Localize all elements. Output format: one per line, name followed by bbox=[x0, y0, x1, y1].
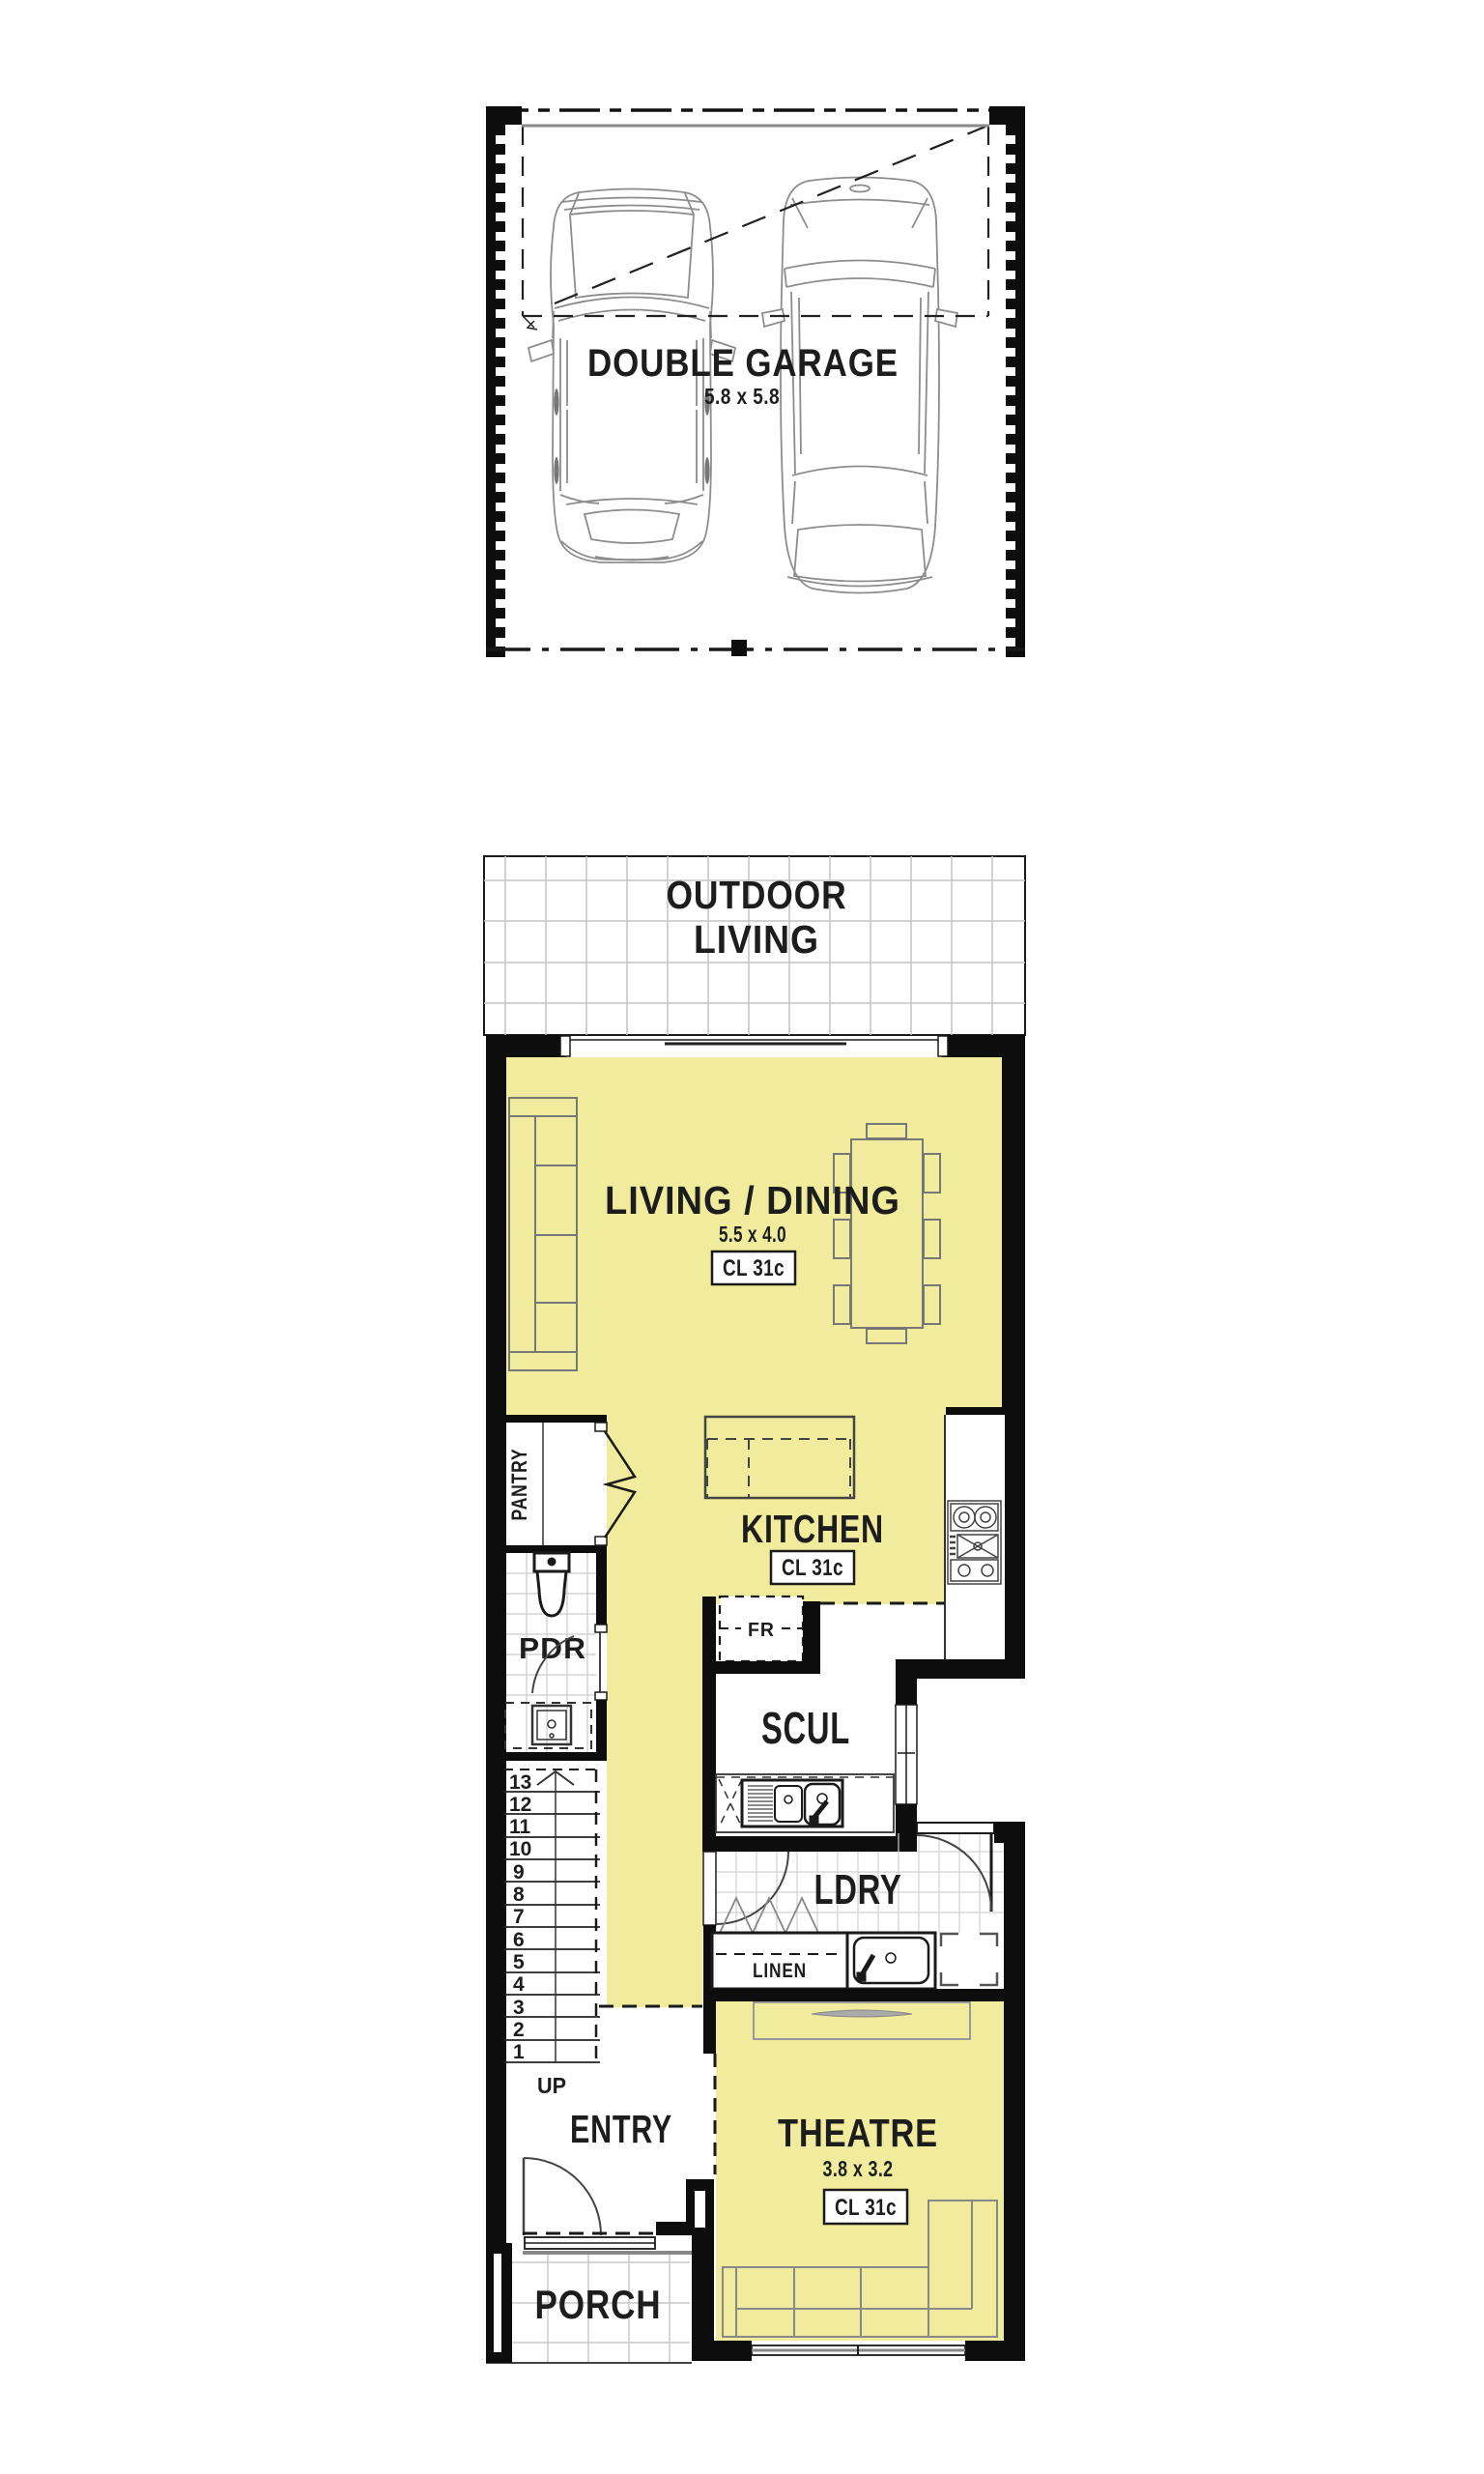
svg-text:2: 2 bbox=[513, 2019, 525, 2041]
svg-text:UP: UP bbox=[537, 2073, 566, 2098]
svg-text:4: 4 bbox=[513, 1973, 525, 1996]
svg-text:DOUBLE GARAGE: DOUBLE GARAGE bbox=[587, 342, 899, 385]
svg-text:7: 7 bbox=[513, 1906, 525, 1928]
svg-text:LDRY: LDRY bbox=[814, 1866, 902, 1913]
svg-text:3: 3 bbox=[513, 1997, 525, 2019]
svg-text:5.8 x 5.8: 5.8 x 5.8 bbox=[704, 384, 780, 409]
svg-text:CL 31c: CL 31c bbox=[782, 1555, 843, 1581]
svg-text:THEATRE: THEATRE bbox=[778, 2111, 938, 2155]
svg-text:ENTRY: ENTRY bbox=[570, 2107, 672, 2151]
svg-text:SCUL: SCUL bbox=[761, 1703, 850, 1753]
svg-text:5.5 x 4.0: 5.5 x 4.0 bbox=[719, 1222, 786, 1247]
svg-text:LIVING: LIVING bbox=[694, 917, 819, 962]
svg-text:PDR: PDR bbox=[519, 1631, 586, 1665]
svg-text:CL 31c: CL 31c bbox=[835, 2195, 897, 2221]
svg-text:13: 13 bbox=[509, 1771, 531, 1794]
svg-text:8: 8 bbox=[513, 1884, 525, 1906]
svg-text:LINEN: LINEN bbox=[753, 1960, 807, 1982]
svg-text:FR: FR bbox=[748, 1620, 775, 1641]
svg-text:KITCHEN: KITCHEN bbox=[741, 1507, 884, 1551]
svg-text:3.8 x 3.2: 3.8 x 3.2 bbox=[823, 2156, 894, 2181]
svg-text:5: 5 bbox=[513, 1951, 525, 1973]
svg-text:12: 12 bbox=[509, 1794, 531, 1816]
svg-text:CL 31c: CL 31c bbox=[723, 1255, 785, 1281]
svg-text:6: 6 bbox=[513, 1929, 525, 1951]
svg-text:1: 1 bbox=[513, 2041, 525, 2063]
svg-text:9: 9 bbox=[513, 1861, 525, 1884]
svg-text:LIVING / DINING: LIVING / DINING bbox=[605, 1178, 900, 1223]
svg-text:10: 10 bbox=[509, 1838, 531, 1860]
svg-text:11: 11 bbox=[509, 1816, 531, 1838]
svg-text:OUTDOOR: OUTDOOR bbox=[667, 873, 847, 917]
svg-text:PORCH: PORCH bbox=[535, 2282, 662, 2327]
svg-text:PANTRY: PANTRY bbox=[507, 1449, 531, 1521]
